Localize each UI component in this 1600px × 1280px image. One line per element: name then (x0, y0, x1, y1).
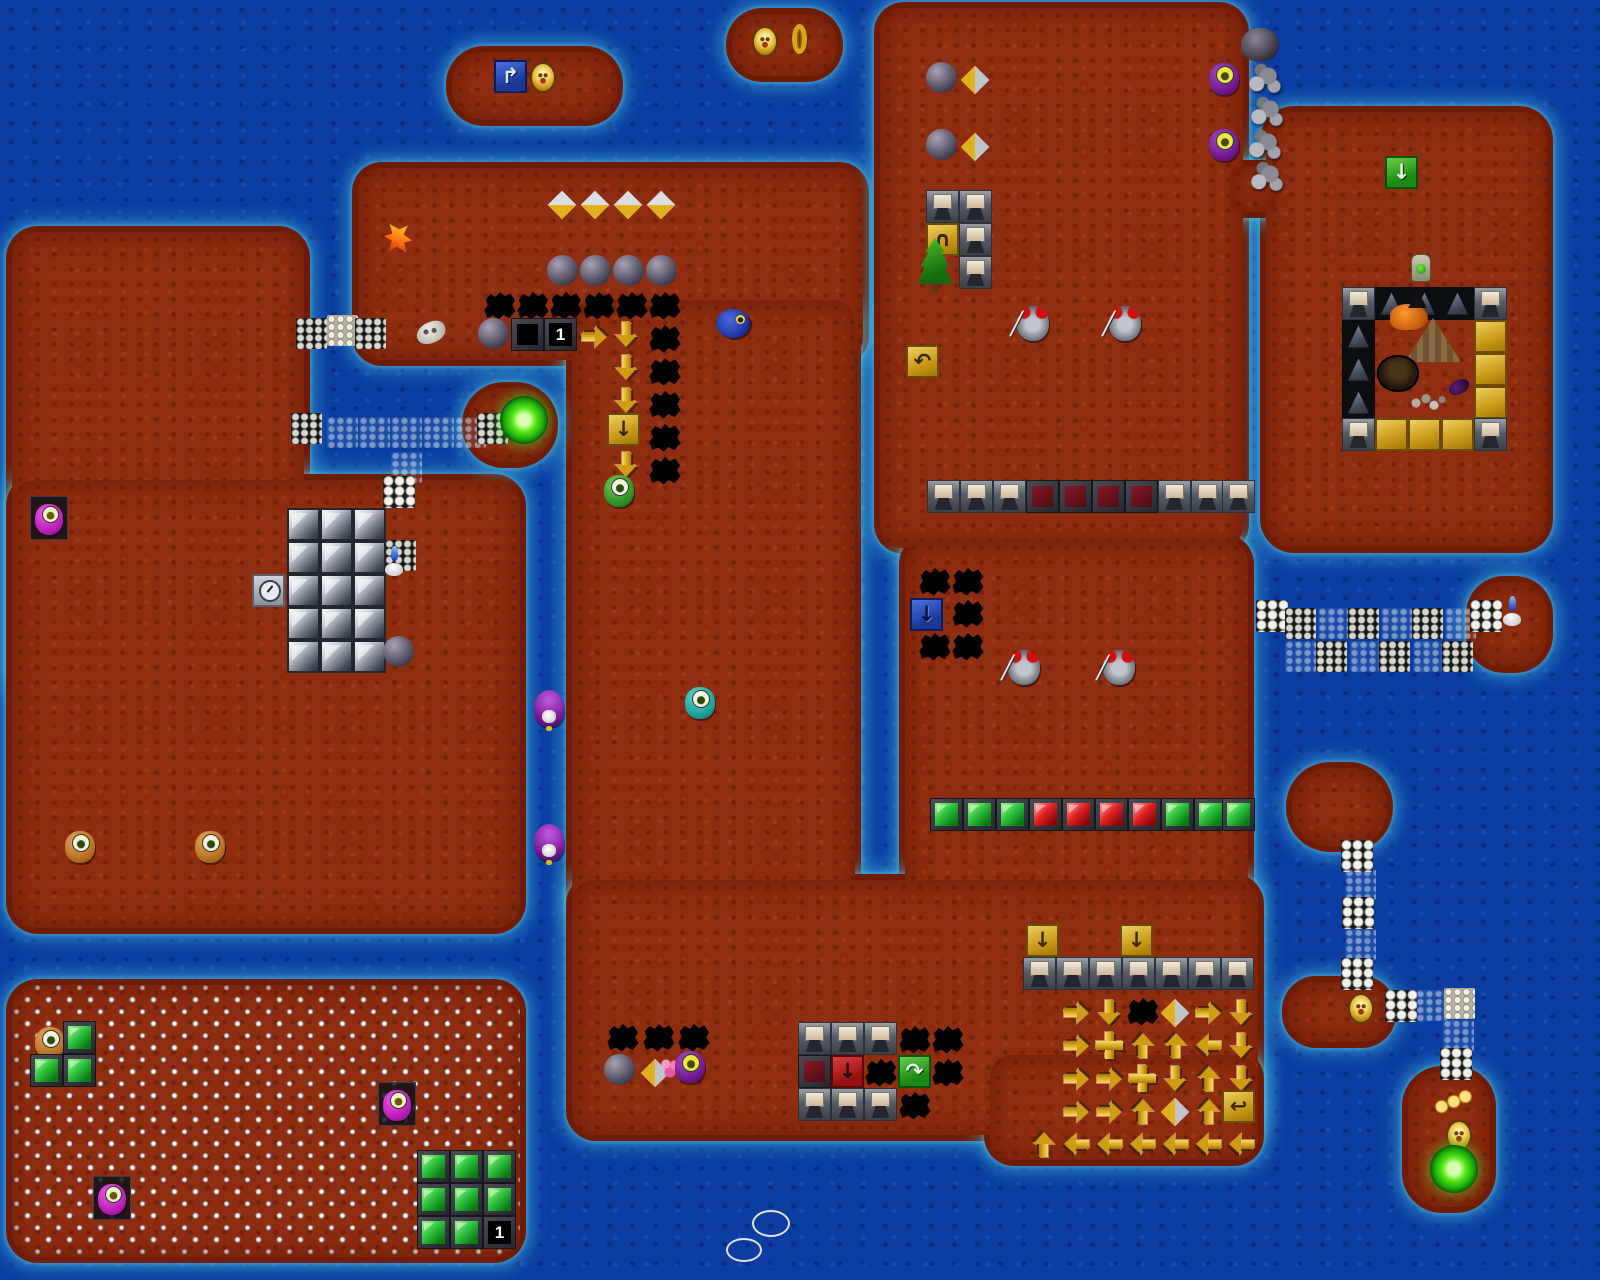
stamper[interactable] (831, 1088, 864, 1121)
tile-green-bounce[interactable] (898, 1055, 931, 1088)
metal[interactable] (353, 508, 386, 541)
boulder[interactable] (613, 255, 644, 286)
stone[interactable] (1285, 608, 1316, 639)
pyramid[interactable] (1342, 386, 1375, 419)
gem-green[interactable] (483, 1183, 516, 1216)
knight[interactable] (1014, 302, 1052, 344)
stone-white[interactable] (383, 476, 415, 508)
medallion[interactable] (752, 26, 778, 57)
stone-white[interactable] (1341, 840, 1373, 872)
cyclops-magenta-tile[interactable] (93, 1176, 131, 1220)
boulder[interactable] (478, 318, 509, 349)
stone-faint[interactable] (359, 417, 390, 448)
arrow-right[interactable] (1093, 1062, 1126, 1095)
tile-yellow[interactable] (1474, 353, 1507, 386)
wizard-purple[interactable] (531, 686, 567, 732)
gem-green[interactable] (63, 1054, 96, 1087)
gem-green[interactable] (996, 798, 1029, 831)
pyramid[interactable] (1342, 320, 1375, 353)
candle-blue[interactable] (384, 546, 404, 576)
arrow-up[interactable] (1126, 1095, 1159, 1128)
red-panel[interactable] (1125, 480, 1158, 513)
tile-black[interactable] (511, 318, 544, 351)
arrow-down[interactable] (1159, 1062, 1192, 1095)
candle-blue[interactable] (1502, 596, 1522, 626)
stamper[interactable] (1222, 480, 1255, 513)
gem-green[interactable] (417, 1150, 450, 1183)
metal[interactable] (287, 607, 320, 640)
tile-yellow[interactable] (1441, 418, 1474, 451)
tile-blue-down[interactable] (910, 598, 943, 631)
arrow-right[interactable] (1192, 996, 1225, 1029)
cyclops-purple[interactable] (1206, 124, 1242, 164)
gem-green[interactable] (450, 1216, 483, 1249)
gem-red[interactable] (1062, 798, 1095, 831)
gem-green[interactable] (450, 1150, 483, 1183)
metal[interactable] (320, 574, 353, 607)
stamper[interactable] (959, 190, 992, 223)
arrow-right[interactable] (578, 320, 611, 353)
tile-red-down[interactable] (831, 1055, 864, 1088)
tile-gold-return[interactable] (1222, 1090, 1255, 1123)
arrow-down[interactable] (1093, 996, 1126, 1029)
red-panel[interactable] (798, 1055, 831, 1088)
gem-red[interactable] (1128, 798, 1161, 831)
stamper[interactable] (864, 1022, 897, 1055)
knight[interactable] (1005, 646, 1043, 688)
stone-faint[interactable] (1413, 641, 1444, 672)
arrow-up[interactable] (1192, 1095, 1225, 1128)
metal[interactable] (353, 640, 386, 673)
tile-clock[interactable] (252, 574, 285, 607)
stone-white[interactable] (1256, 600, 1288, 632)
stamper[interactable] (1188, 957, 1221, 990)
gem-green[interactable] (483, 1150, 516, 1183)
metal[interactable] (287, 508, 320, 541)
arrow-right[interactable] (1060, 1029, 1093, 1062)
boulder[interactable] (580, 255, 611, 286)
stamper[interactable] (1191, 480, 1224, 513)
stone-white[interactable] (1342, 897, 1374, 929)
stamper[interactable] (1221, 957, 1254, 990)
stone-light[interactable] (327, 315, 358, 346)
island-coin-islet (1288, 982, 1390, 1042)
stamper[interactable] (1158, 480, 1191, 513)
stamper[interactable] (959, 223, 992, 256)
rock-pile[interactable] (1248, 160, 1284, 192)
tile-gold-down[interactable] (1120, 924, 1153, 957)
red-panel[interactable] (1092, 480, 1125, 513)
tile-green-down[interactable] (1385, 156, 1418, 189)
portal-green[interactable] (500, 396, 548, 444)
cauldron[interactable] (1375, 352, 1421, 394)
tile-gold-bounce[interactable] (906, 345, 939, 378)
stone-faint[interactable] (1416, 990, 1447, 1021)
pebbles[interactable] (1408, 392, 1448, 414)
portal-green[interactable] (1430, 1145, 1478, 1193)
cyclops-magenta-tile[interactable] (378, 1082, 416, 1126)
rock-pile[interactable] (1246, 128, 1282, 160)
metal[interactable] (353, 541, 386, 574)
stamper[interactable] (993, 480, 1026, 513)
stone-white[interactable] (1440, 1048, 1472, 1080)
gem-green[interactable] (963, 798, 996, 831)
gem-red[interactable] (1029, 798, 1062, 831)
metal[interactable] (320, 640, 353, 673)
gem-green[interactable] (417, 1183, 450, 1216)
pyramid[interactable] (1342, 353, 1375, 386)
arrow-right[interactable] (1093, 1095, 1126, 1128)
boulder[interactable] (547, 255, 578, 286)
arrow-left[interactable] (1225, 1128, 1258, 1161)
stamper[interactable] (926, 190, 959, 223)
gem-green[interactable] (1222, 798, 1255, 831)
tile-blue-bounce[interactable] (494, 60, 527, 93)
stone-faint[interactable] (1381, 608, 1412, 639)
stamper[interactable] (1089, 957, 1122, 990)
wizard-purple[interactable] (531, 820, 567, 866)
cyclops-tan[interactable] (62, 826, 98, 866)
rock-pile[interactable] (1248, 95, 1284, 127)
stone[interactable] (1379, 641, 1410, 672)
medallion[interactable] (530, 62, 556, 93)
tile-yellow[interactable] (1474, 386, 1507, 419)
tile-gold-down[interactable] (1026, 924, 1059, 957)
metal[interactable] (287, 541, 320, 574)
boulder[interactable] (383, 636, 414, 667)
stone-faint[interactable] (391, 417, 422, 448)
metal[interactable] (320, 607, 353, 640)
game-map: 11 (0, 0, 1600, 1280)
stone[interactable] (1442, 641, 1473, 672)
red-panel[interactable] (1026, 480, 1059, 513)
medallion[interactable] (1348, 993, 1374, 1024)
cyclops-tan[interactable] (192, 826, 228, 866)
gem-green[interactable] (63, 1021, 96, 1054)
stone[interactable] (1316, 641, 1347, 672)
cyclops-magenta-tile[interactable] (30, 496, 68, 540)
stone-faint[interactable] (1318, 608, 1349, 639)
stone-faint[interactable] (1345, 869, 1376, 900)
stamper[interactable] (1056, 957, 1089, 990)
metal[interactable] (287, 640, 320, 673)
sel-ellipse[interactable] (726, 1238, 762, 1262)
stamper[interactable] (1342, 287, 1375, 320)
stone-white[interactable] (1341, 958, 1373, 990)
arrow-right[interactable] (1060, 1062, 1093, 1095)
boulder[interactable] (926, 129, 957, 160)
creature-witch[interactable] (1388, 300, 1430, 332)
rock-pile[interactable] (1246, 62, 1282, 94)
tile-number[interactable]: 1 (544, 318, 577, 351)
tile-number[interactable]: 1 (483, 1216, 516, 1249)
stamper[interactable] (960, 480, 993, 513)
stone-white[interactable] (1470, 600, 1502, 632)
stamper[interactable] (1155, 957, 1188, 990)
tile-yellow[interactable] (1474, 320, 1507, 353)
stamper[interactable] (798, 1088, 831, 1121)
nuggets[interactable] (1432, 1085, 1474, 1118)
stamper[interactable] (1474, 287, 1507, 320)
gem-red[interactable] (1095, 798, 1128, 831)
stone-faint[interactable] (1285, 641, 1316, 672)
red-panel[interactable] (1059, 480, 1092, 513)
stone-faint[interactable] (1443, 1020, 1474, 1051)
stamper[interactable] (831, 1022, 864, 1055)
stamper[interactable] (1342, 418, 1375, 451)
beetle-blue[interactable] (712, 306, 754, 342)
gold-ring[interactable] (792, 24, 807, 54)
bottle-green[interactable] (1411, 254, 1431, 282)
metal[interactable] (320, 541, 353, 574)
gem-green[interactable] (417, 1216, 450, 1249)
pyramid[interactable] (1441, 287, 1474, 320)
cyclops-purple[interactable] (1206, 58, 1242, 98)
tree[interactable] (916, 238, 954, 292)
stamper[interactable] (1122, 957, 1155, 990)
stone-light[interactable] (1444, 988, 1475, 1019)
metal[interactable] (320, 508, 353, 541)
arrow-right[interactable] (1060, 996, 1093, 1029)
arrow-down[interactable] (1225, 1029, 1258, 1062)
gem-green[interactable] (930, 798, 963, 831)
sel-ellipse[interactable] (752, 1210, 790, 1237)
metal[interactable] (353, 607, 386, 640)
metal[interactable] (353, 574, 386, 607)
knight[interactable] (1100, 646, 1138, 688)
island-islet-top (732, 14, 837, 76)
boulder-dark[interactable] (1241, 28, 1279, 62)
arrow-cross[interactable] (1093, 1029, 1126, 1062)
stamper[interactable] (927, 480, 960, 513)
tile-yellow[interactable] (1375, 418, 1408, 451)
arrow-right[interactable] (1060, 1095, 1093, 1128)
boulder[interactable] (926, 62, 957, 93)
boulder[interactable] (604, 1054, 635, 1085)
arrow-up[interactable] (1126, 1029, 1159, 1062)
arrow-down[interactable] (610, 351, 643, 384)
arrow-down[interactable] (610, 318, 643, 351)
gem-green[interactable] (450, 1183, 483, 1216)
stone-faint[interactable] (327, 417, 358, 448)
stone[interactable] (1412, 608, 1443, 639)
boulder[interactable] (646, 255, 677, 286)
stone-faint[interactable] (1345, 929, 1376, 960)
gem-green[interactable] (1161, 798, 1194, 831)
stone-faint[interactable] (423, 417, 454, 448)
stone[interactable] (291, 413, 322, 444)
island-round-islet (1292, 768, 1387, 846)
stone[interactable] (296, 318, 327, 349)
stamper[interactable] (959, 256, 992, 289)
stone[interactable] (355, 318, 386, 349)
stamper[interactable] (1474, 418, 1507, 451)
cyclops-cyan[interactable] (682, 682, 718, 722)
tile-gold-down[interactable] (607, 413, 640, 446)
arrow-down[interactable] (1225, 996, 1258, 1029)
stone-faint[interactable] (1350, 641, 1381, 672)
stamper[interactable] (864, 1088, 897, 1121)
cyclops-purple[interactable] (672, 1046, 708, 1086)
stone-white[interactable] (1385, 990, 1417, 1022)
cyclops-green[interactable] (601, 470, 637, 510)
stamper[interactable] (798, 1022, 831, 1055)
stamper[interactable] (1023, 957, 1056, 990)
tile-yellow[interactable] (1408, 418, 1441, 451)
metal[interactable] (287, 574, 320, 607)
gem-green[interactable] (30, 1054, 63, 1087)
stone[interactable] (1348, 608, 1379, 639)
knight[interactable] (1106, 302, 1144, 344)
